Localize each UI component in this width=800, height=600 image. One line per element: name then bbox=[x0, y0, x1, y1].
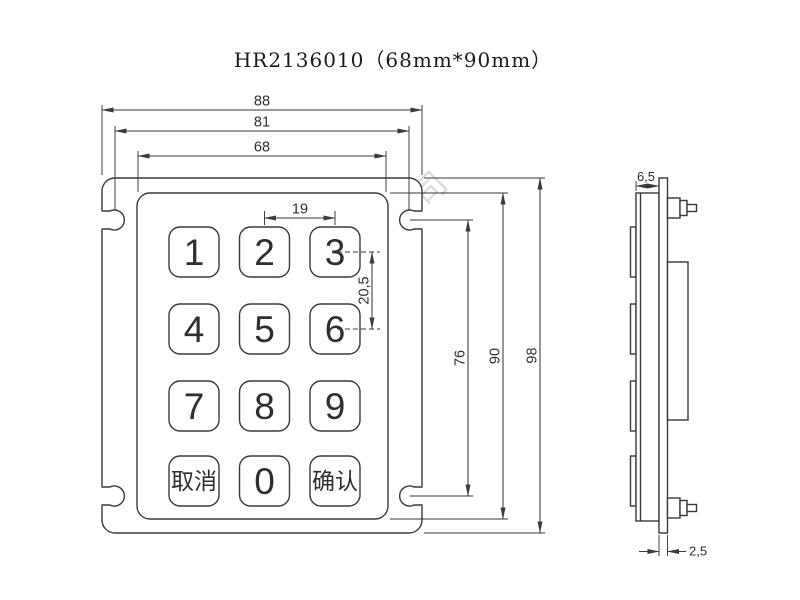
side-key-profile bbox=[631, 456, 637, 506]
stud-flange bbox=[668, 198, 681, 218]
side-key-profile bbox=[631, 227, 637, 277]
side-rear-housing bbox=[668, 262, 689, 420]
key-label: 1 bbox=[184, 232, 205, 273]
drawing-canvas: 深圳市汇融电子设备有限公司 HR2136010（68mm*90mm） 1 2 bbox=[0, 0, 800, 600]
key-label: 5 bbox=[254, 309, 275, 350]
key-0: 0 bbox=[240, 456, 290, 506]
dim-text: 98 bbox=[525, 347, 541, 363]
key-label: 3 bbox=[325, 232, 346, 273]
side-view: 6,5 2,5 bbox=[631, 169, 708, 559]
stud-nut bbox=[680, 201, 687, 216]
key-label: 6 bbox=[325, 309, 346, 350]
mounting-slot-top-left bbox=[101, 210, 124, 230]
dim-text: 68 bbox=[254, 140, 270, 156]
key-4: 4 bbox=[169, 304, 219, 354]
key-7: 7 bbox=[169, 381, 219, 431]
dim-text: 6,5 bbox=[637, 169, 655, 184]
mounting-slot-bottom-left bbox=[101, 486, 124, 506]
stud-bottom bbox=[668, 498, 697, 518]
key-6: 6 bbox=[310, 304, 360, 354]
dim-text: 88 bbox=[254, 94, 270, 110]
key-cancel: 取消 bbox=[169, 456, 219, 506]
side-body bbox=[636, 193, 659, 521]
key-label: 0 bbox=[254, 461, 275, 502]
key-3: 3 bbox=[310, 227, 360, 277]
stud-pin bbox=[687, 205, 697, 212]
key-label: 8 bbox=[254, 386, 275, 427]
side-back-plate bbox=[659, 178, 668, 533]
dim-overall-width: 88 bbox=[102, 94, 422, 176]
stud-nut bbox=[680, 501, 687, 516]
dim-text: 90 bbox=[488, 348, 504, 364]
key-9: 9 bbox=[310, 381, 360, 431]
extension-line bbox=[659, 535, 668, 556]
key-label: 确认 bbox=[312, 468, 358, 494]
key-label: 4 bbox=[184, 309, 205, 350]
key-confirm: 确认 bbox=[310, 456, 360, 506]
dim-overall-height: 98 bbox=[424, 178, 545, 533]
stud-top bbox=[668, 198, 697, 218]
dim-text: 2,5 bbox=[689, 544, 707, 559]
engineering-drawing: 深圳市汇融电子设备有限公司 HR2136010（68mm*90mm） 1 2 bbox=[0, 0, 800, 600]
side-key-profile bbox=[631, 381, 637, 431]
front-view: 1 2 3 4 5 6 7 bbox=[101, 94, 545, 534]
key-5: 5 bbox=[240, 304, 290, 354]
dim-text: 81 bbox=[254, 115, 270, 131]
key-2: 2 bbox=[240, 227, 290, 277]
key-label: 9 bbox=[325, 386, 346, 427]
key-label: 2 bbox=[254, 232, 275, 273]
key-label: 7 bbox=[184, 386, 205, 427]
key-label: 取消 bbox=[171, 468, 217, 494]
dim-depth: 6,5 bbox=[636, 169, 659, 191]
drawing-title: HR2136010（68mm*90mm） bbox=[234, 48, 552, 72]
key-8: 8 bbox=[240, 381, 290, 431]
side-key-profile bbox=[631, 304, 637, 354]
dim-plate-thickness: 2,5 bbox=[639, 535, 707, 559]
stud-flange bbox=[668, 498, 681, 518]
key-1: 1 bbox=[169, 227, 219, 277]
dim-text: 76 bbox=[453, 350, 469, 366]
dim-text: 19 bbox=[292, 202, 308, 218]
dim-text: 20,5 bbox=[357, 276, 373, 304]
side-key-profiles bbox=[631, 227, 637, 506]
stud-pin bbox=[687, 505, 697, 512]
